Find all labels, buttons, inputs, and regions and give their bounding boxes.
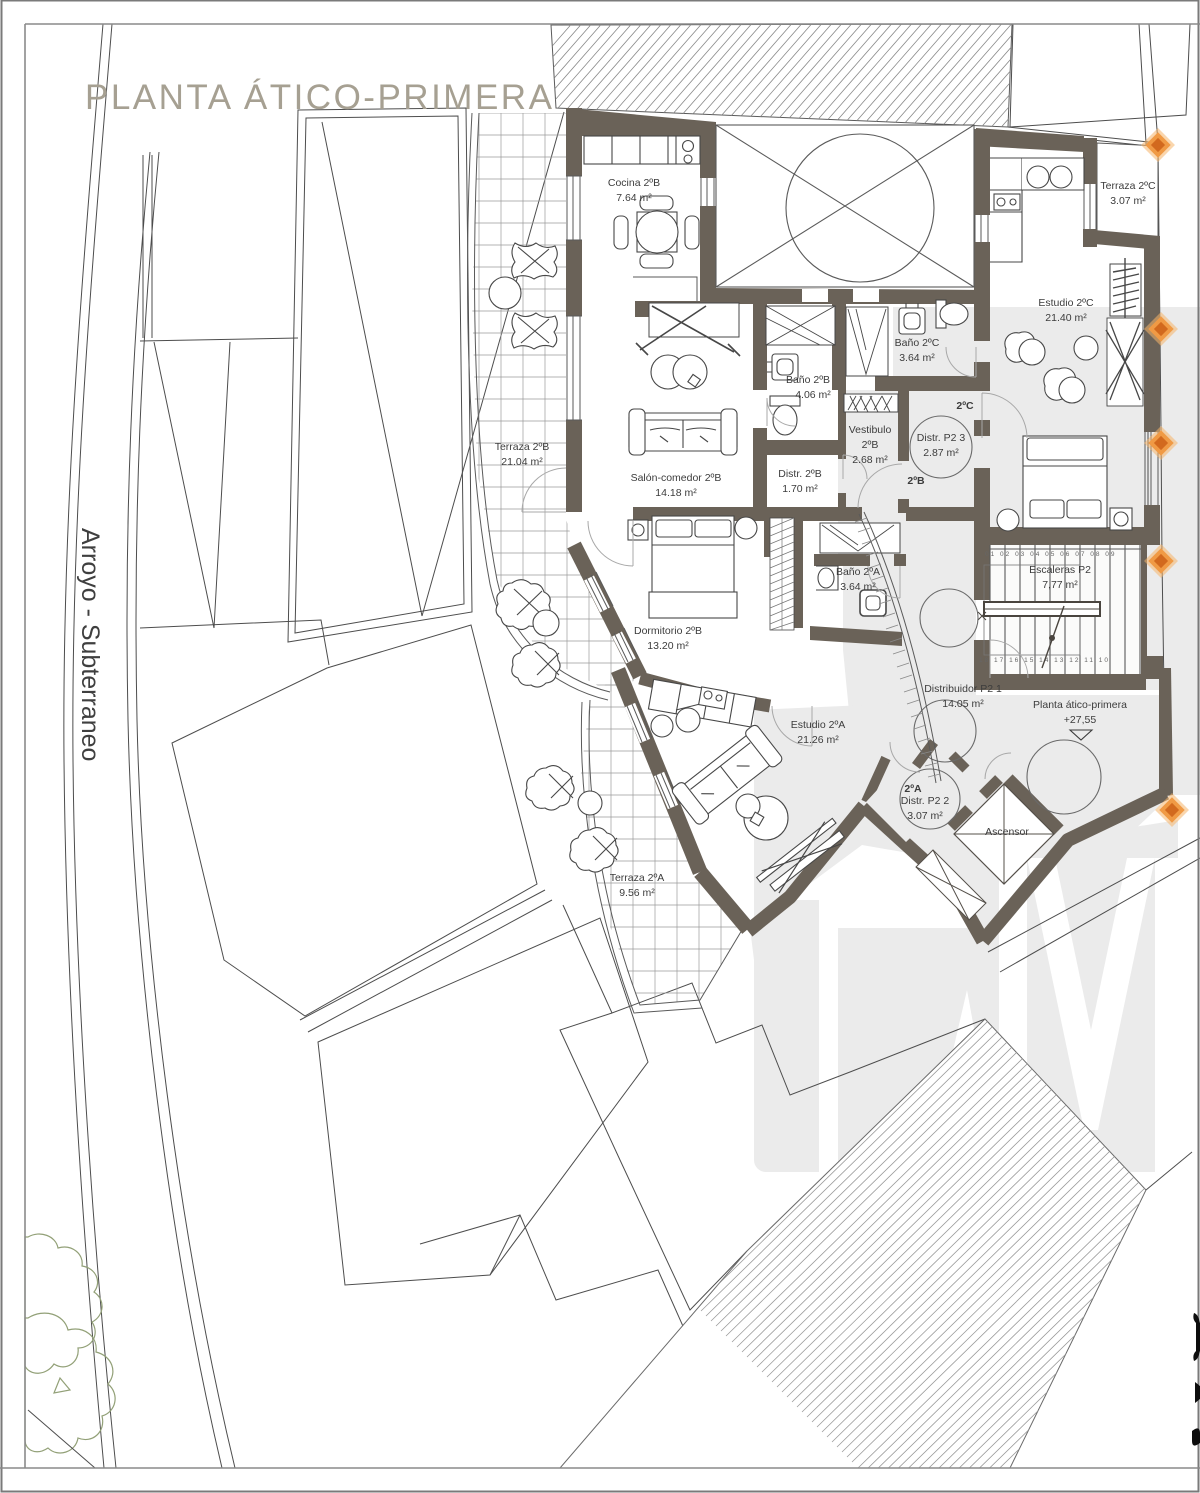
svg-text:Distr. P2 3: Distr. P2 3 (917, 432, 966, 444)
svg-text:3.64 m²: 3.64 m² (899, 352, 935, 364)
svg-text:18 17 16 15 14 13 12 11 10: 18 17 16 15 14 13 12 11 10 (979, 657, 1110, 664)
svg-text:Escaleras P2: Escaleras P2 (1029, 564, 1091, 576)
svg-text:Estudio 2ºC: Estudio 2ºC (1038, 297, 1094, 309)
svg-text:Distr. P2 2: Distr. P2 2 (901, 795, 950, 807)
svg-text:Ascensor: Ascensor (985, 826, 1029, 838)
svg-text:PLANTA ÁTICO-PRIMERA: PLANTA ÁTICO-PRIMERA (85, 78, 554, 117)
svg-text:2ºC: 2ºC (956, 400, 974, 412)
svg-text:Cocina 2ºB: Cocina 2ºB (608, 177, 660, 189)
svg-text:Distribuidor P2 1: Distribuidor P2 1 (924, 683, 1002, 695)
svg-text:+27,55: +27,55 (1064, 714, 1097, 726)
svg-text:9.56 m²: 9.56 m² (619, 887, 655, 899)
svg-text:2ºB: 2ºB (862, 439, 879, 451)
svg-text:Distr. 2ºB: Distr. 2ºB (778, 468, 822, 480)
svg-text:Baño 2ºB: Baño 2ºB (786, 374, 830, 386)
svg-text:3.07 m²: 3.07 m² (1110, 195, 1146, 207)
svg-text:Arroyo - Subterraneo: Arroyo - Subterraneo (76, 528, 104, 761)
svg-text:21.40 m²: 21.40 m² (1045, 312, 1087, 324)
svg-text:Vestibulo: Vestibulo (849, 424, 892, 436)
svg-text:3.64 m²: 3.64 m² (840, 581, 876, 593)
svg-text:Salón-comedor 2ºB: Salón-comedor 2ºB (631, 472, 722, 484)
svg-text:2ºB: 2ºB (907, 475, 925, 487)
svg-text:14.18 m²: 14.18 m² (655, 487, 697, 499)
svg-text:2ºA: 2ºA (904, 783, 922, 795)
svg-text:13.20 m²: 13.20 m² (647, 640, 689, 652)
svg-text:7,77 m²: 7,77 m² (1042, 579, 1078, 591)
svg-text:7.64 m²: 7.64 m² (616, 192, 652, 204)
svg-text:4.06 m²: 4.06 m² (795, 389, 831, 401)
svg-text:Baño 2ºA: Baño 2ºA (836, 566, 880, 578)
svg-text:2.68 m²: 2.68 m² (852, 454, 888, 466)
svg-text:21.04 m²: 21.04 m² (501, 456, 543, 468)
svg-text:Baño 2ºC: Baño 2ºC (895, 337, 940, 349)
svg-text:21.26 m²: 21.26 m² (797, 734, 839, 746)
svg-text:1.70 m²: 1.70 m² (782, 483, 818, 495)
svg-text:Estudio 2ºA: Estudio 2ºA (791, 719, 846, 731)
svg-text:Planta ático-primera: Planta ático-primera (1033, 699, 1127, 711)
svg-text:2.87 m²: 2.87 m² (923, 447, 959, 459)
svg-text:Terraza 2ºC: Terraza 2ºC (1100, 180, 1156, 192)
svg-text:Terraza 2ºB: Terraza 2ºB (495, 441, 550, 453)
svg-text:Terraza 2ºA: Terraza 2ºA (610, 872, 665, 884)
svg-text:Dormitorio 2ºB: Dormitorio 2ºB (634, 625, 702, 637)
svg-text:14.05 m²: 14.05 m² (942, 698, 984, 710)
svg-text:01 02 03 04 05 06 07 08 09: 01 02 03 04 05 06 07 08 09 (985, 551, 1117, 558)
svg-text:3.07 m²: 3.07 m² (907, 810, 943, 822)
